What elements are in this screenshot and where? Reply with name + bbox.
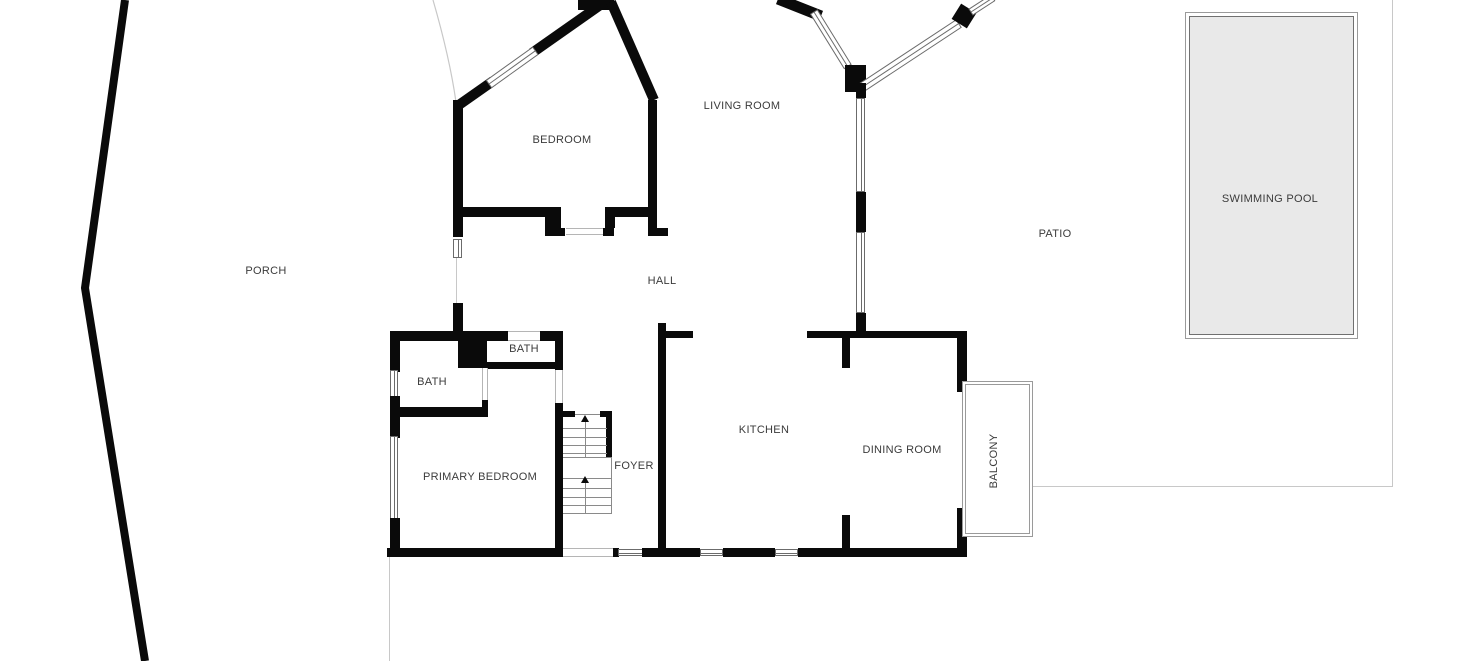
- stairs-up-arrow-1: [581, 415, 589, 422]
- label-kitchen: KITCHEN: [739, 424, 789, 436]
- kitchen-dining-divider-bottom: [842, 515, 850, 548]
- livingroom-window-upper: [856, 98, 865, 192]
- bath-black-block: [458, 333, 487, 368]
- livingroom-diagonal-window-1: [811, 10, 851, 69]
- bath-top-wall-left: [390, 331, 508, 341]
- bottom-window-3: [775, 549, 798, 556]
- patio-boundary-right: [1392, 0, 1393, 487]
- livingroom-window-wall-seg1: [856, 83, 866, 98]
- foyer-entry-door: [563, 548, 613, 557]
- bedroom-right-wall: [648, 100, 657, 236]
- hall-left-opening-line: [456, 258, 457, 304]
- staircase: [563, 411, 612, 514]
- label-dining-room: DINING ROOM: [862, 444, 941, 456]
- stairs-up-arrow-2: [581, 476, 589, 483]
- label-hall: HALL: [648, 275, 677, 287]
- label-bath-left: BATH: [417, 376, 447, 388]
- bath-right-wall-upper: [555, 331, 563, 370]
- stairs-bottom-line: [563, 513, 612, 514]
- left-window-1: [390, 370, 398, 398]
- label-bath-upper: BATH: [509, 343, 539, 355]
- label-swimming-pool: SWIMMING POOL: [1222, 193, 1318, 205]
- bath-left-door: [482, 368, 488, 401]
- stair-tread: [563, 497, 612, 498]
- bedroom-door-threshold: [566, 228, 603, 235]
- left-window-2: [390, 436, 398, 520]
- label-primary-bedroom: PRIMARY BEDROOM: [423, 471, 537, 483]
- swimming-pool-outline: [1185, 12, 1358, 339]
- patio-boundary-bottom: [1033, 486, 1393, 487]
- label-foyer: FOYER: [614, 460, 653, 472]
- hall-right-wall-foot: [648, 228, 668, 236]
- left-exterior-wall-2: [390, 396, 400, 438]
- label-porch: PORCH: [245, 265, 286, 277]
- lot-line-bottom-left: [389, 557, 390, 661]
- stair-landing-line: [563, 457, 612, 458]
- porch-edge-line: [85, 0, 145, 661]
- bedroom-diagonal-window: [486, 47, 538, 87]
- bedroom-door-foot-left: [545, 228, 565, 236]
- stair-tread: [563, 488, 612, 489]
- swimming-pool-water: [1189, 16, 1354, 335]
- stairs-top-post-left: [563, 411, 575, 417]
- bedroom-right-diagonal-wall: [611, 2, 654, 100]
- kitchen-top-stub: [666, 331, 693, 338]
- bottom-wall-1: [387, 548, 563, 557]
- bottom-window-1: [618, 549, 643, 556]
- kitchen-dining-divider-top: [842, 337, 850, 368]
- floor-plan-canvas: PORCH BEDROOM LIVING ROOM HALL BATH BATH…: [0, 0, 1476, 661]
- stairs-right-wall: [606, 411, 612, 457]
- livingroom-window-wall-seg2: [856, 192, 866, 232]
- label-balcony: BALCONY: [988, 434, 1000, 489]
- bath-upper-door: [508, 331, 540, 341]
- label-bedroom: BEDROOM: [533, 134, 592, 146]
- foyer-left-wall: [555, 403, 563, 557]
- bath-left-bottom-wall: [390, 407, 488, 417]
- livingroom-window-lower: [856, 232, 865, 313]
- kitchen-left-wall: [658, 323, 666, 557]
- porch-boundary-curve: [433, 0, 456, 102]
- bedroom-door-jamb-right: [603, 228, 614, 236]
- label-patio: PATIO: [1039, 228, 1072, 240]
- bottom-window-2: [700, 549, 723, 556]
- dining-top-wall: [807, 331, 967, 338]
- livingroom-diagonal-window-2: [859, 20, 962, 92]
- bedroom-bottom-wall-left: [453, 207, 561, 217]
- hall-left-window: [453, 239, 462, 258]
- label-living-room: LIVING ROOM: [704, 100, 781, 112]
- bath-upper-bottom-wall: [487, 362, 557, 369]
- bottom-wall-3: [723, 548, 775, 557]
- livingroom-window-wall-seg3: [856, 313, 866, 332]
- bottom-wall-2: [642, 548, 700, 557]
- stairs-center-line-upper: [585, 419, 586, 457]
- stair-tread: [563, 505, 612, 506]
- livingroom-diagonal-window-3: [969, 0, 995, 15]
- bottom-wall-4: [798, 548, 967, 557]
- left-exterior-wall-1: [390, 331, 400, 372]
- bath-right-door: [555, 370, 563, 403]
